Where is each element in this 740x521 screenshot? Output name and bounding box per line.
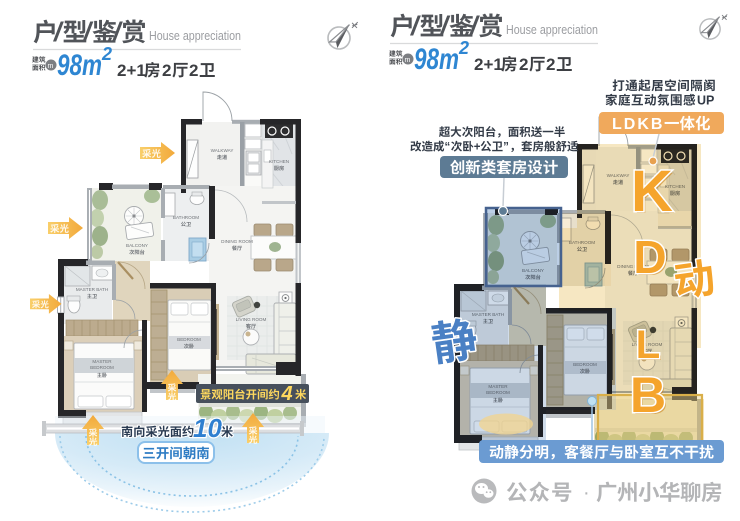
svg-text:House appreciation: House appreciation — [506, 23, 598, 37]
svg-text:98m: 98m — [414, 43, 459, 76]
svg-text:2: 2 — [546, 55, 555, 74]
svg-text:/: / — [410, 11, 421, 41]
svg-text:/: / — [53, 17, 64, 47]
svg-text:/: / — [83, 17, 94, 47]
svg-text:98m: 98m — [57, 49, 102, 82]
svg-text:m: m — [405, 57, 411, 64]
svg-text:BALCONY: BALCONY — [126, 243, 148, 248]
svg-text:L: L — [636, 323, 660, 367]
svg-text:2: 2 — [519, 55, 528, 74]
svg-text:MASTER: MASTER — [92, 359, 112, 364]
svg-text:BATHROOM: BATHROOM — [173, 215, 199, 220]
svg-text:2: 2 — [162, 61, 171, 80]
svg-text:/: / — [469, 11, 480, 41]
svg-text:2: 2 — [189, 61, 198, 80]
svg-text:B: B — [630, 367, 666, 423]
svg-text:m: m — [48, 63, 54, 70]
svg-text:+: + — [474, 142, 481, 154]
svg-text:·: · — [583, 482, 590, 504]
svg-text:LDKB: LDKB — [612, 116, 664, 133]
svg-text:2+1: 2+1 — [117, 61, 146, 80]
svg-text:DINING ROOM: DINING ROOM — [221, 239, 253, 244]
svg-text:”: ” — [503, 142, 509, 154]
svg-text:2+1: 2+1 — [474, 55, 503, 74]
svg-text:2: 2 — [101, 44, 112, 64]
svg-text:/: / — [440, 11, 451, 41]
svg-text:D: D — [633, 231, 666, 283]
svg-text:KITCHEN: KITCHEN — [269, 159, 289, 164]
svg-text:K: K — [631, 159, 673, 224]
svg-text:10: 10 — [193, 413, 222, 443]
svg-text:WALKWAY: WALKWAY — [211, 148, 234, 153]
svg-text:/: / — [112, 17, 123, 47]
svg-text:UP: UP — [697, 94, 714, 108]
svg-text:House appreciation: House appreciation — [149, 29, 241, 43]
svg-text:2: 2 — [458, 38, 469, 58]
svg-text:LIVING ROOM: LIVING ROOM — [236, 317, 267, 322]
svg-text:4: 4 — [280, 383, 292, 405]
svg-text:BEDROOM: BEDROOM — [177, 337, 201, 342]
svg-text:“: “ — [445, 142, 451, 154]
svg-text:BEDROOM: BEDROOM — [90, 365, 114, 370]
svg-text:MASTER BATH: MASTER BATH — [76, 287, 108, 292]
